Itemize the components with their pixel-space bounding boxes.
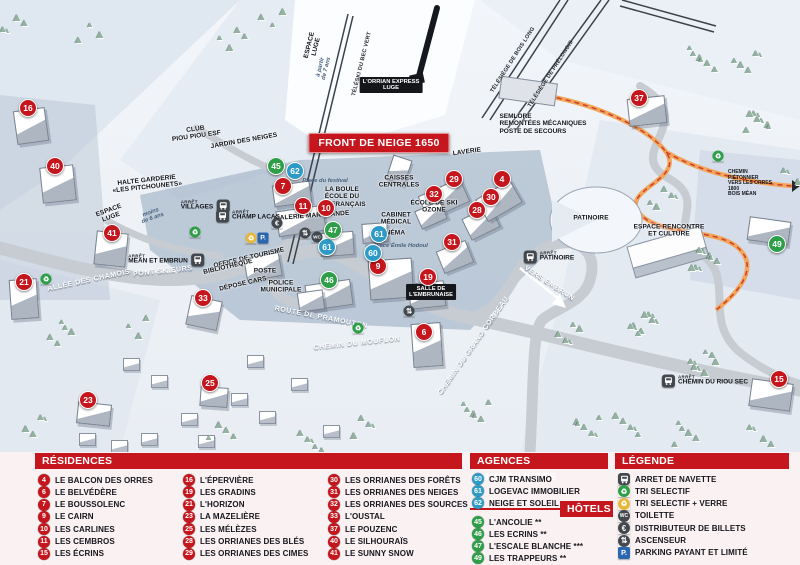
legend-number-badge: 29 xyxy=(183,548,195,560)
tree-icon: ▲ xyxy=(710,355,722,367)
chalet-building xyxy=(151,375,168,388)
tree-icon: ▲ xyxy=(125,322,133,330)
map-marker-28: 28 xyxy=(468,201,486,219)
legend-item-les-carlines: 10LES CARLINES xyxy=(38,523,180,535)
map-marker-62: 62 xyxy=(286,162,304,180)
legend-item-label: LES CEMBROS xyxy=(55,537,115,546)
tree-icon: ▲ xyxy=(484,398,494,408)
poi-recycle-green: ♻ xyxy=(41,274,52,285)
legend-item-label: LES TRAPPEURS ** xyxy=(489,554,566,563)
tree-icon: ▲ xyxy=(216,34,224,42)
legend-item-l-oustal: 33L'OUSTAL xyxy=(328,511,478,523)
legend-item-label: TOILETTE xyxy=(635,511,674,520)
atm-euro-icon: € xyxy=(618,522,630,534)
legend-number-badge: 16 xyxy=(183,474,195,486)
residences-column-3: 30LES ORRIANES DES FORÊTS31LES ORRIANES … xyxy=(328,474,478,560)
recycle-icon: ♻ xyxy=(190,227,201,238)
legend-item-cjm-transimo: 60CJM TRANSIMO xyxy=(472,473,612,485)
chalet-building xyxy=(291,378,308,391)
tree-icon: ▲ xyxy=(646,198,655,207)
tree-icon: ▲ xyxy=(745,423,755,433)
legend-item-label: LES ÉCRINS xyxy=(55,549,104,558)
legend-item-label: PARKING PAYANT ET LIMITÉ xyxy=(635,548,748,557)
legend-item-le-silhoura-s: 40LE SILHOURAÏS xyxy=(328,536,478,548)
legend-item-label: LE CAIRN xyxy=(55,512,94,521)
legend-item-label: LE BOUSSOLENC xyxy=(55,500,125,509)
legend-item-label: LES ORRIANES DES NEIGES xyxy=(345,488,458,497)
map-marker-15: 15 xyxy=(770,370,788,388)
legende-header: LÉGENDE xyxy=(615,453,789,469)
tree-icon: ▲ xyxy=(792,175,800,187)
map-marker-31: 31 xyxy=(443,233,461,251)
resort-map-page: ▲▲▲▲▲▲▲▲▲▲▲▲▲▲▲▲▲▲▲▲▲▲▲▲▲▲▲▲▲▲▲▲▲▲▲▲▲▲▲▲… xyxy=(0,0,800,565)
map-marker-46: 46 xyxy=(320,271,338,289)
map-marker-16: 16 xyxy=(19,99,37,117)
legend-number-badge: 7 xyxy=(38,499,50,511)
legend-item-label: DISTRIBUTEUR DE BILLETS xyxy=(635,524,746,533)
chalet-building xyxy=(247,355,264,368)
tree-icon: ▲ xyxy=(686,261,698,273)
legend-number-badge: 45 xyxy=(472,516,484,528)
map-marker-11: 11 xyxy=(294,197,312,215)
tree-icon: ▲ xyxy=(752,114,763,125)
tree-icon: ▲ xyxy=(741,125,752,136)
legend-number-badge: 15 xyxy=(38,548,50,560)
map-label-semlore: SEMLORE REMONTÉES MÉCANIQUES POSTE DE SE… xyxy=(499,113,586,135)
parking-icon: P. xyxy=(618,547,630,559)
map-label-patinoire: PATINOIRE xyxy=(573,214,608,221)
legend-number-badge: 32 xyxy=(328,499,340,511)
legend-item-les-orrianes-des-cimes: 29LES ORRIANES DES CIMES xyxy=(183,548,325,560)
chalet-building xyxy=(123,358,140,371)
residences-column-2: 16L'ÉPERVIÈRE19LES GRADINS21L'HORIZON23L… xyxy=(183,474,325,560)
residences-header: RÉSIDENCES xyxy=(35,453,462,469)
map-label-l-orrian-express: L'ORRIAN EXPRESS LUGE xyxy=(360,77,423,93)
legend-number-badge: 46 xyxy=(472,528,484,540)
bus-stop-chemin-du-riou-sec: ARRÊTCHEMIN DU RIOU SEC xyxy=(662,375,748,388)
map-marker-10: 10 xyxy=(317,199,335,217)
legend-item-la-mazeli-re: 23LA MAZELIÈRE xyxy=(183,511,325,523)
legend-number-badge: 23 xyxy=(183,511,195,523)
bus-icon xyxy=(662,375,675,388)
tree-icon: ▲ xyxy=(61,323,70,332)
tree-icon: ▲ xyxy=(569,320,578,329)
bus-icon xyxy=(618,473,630,485)
legend-item-label: LES ORRIANES DES SOURCES xyxy=(345,500,468,509)
legend-item-label: ASCENSEUR xyxy=(635,536,686,545)
bus-stop-patinoire: ARRÊTPATINOIRE xyxy=(524,251,574,264)
tree-icon: ▲ xyxy=(765,123,773,131)
agences-column: 60CJM TRANSIMO61LOGEVAC IMMOBILIER62NEIG… xyxy=(472,473,612,506)
legend-item-tri-selectif: ♻TRI SELECTIF xyxy=(618,485,793,497)
legend-item-label: TRI SELECTIF + VERRE xyxy=(635,499,727,508)
map-marker-40: 40 xyxy=(46,157,64,175)
legend-item-label: LES MÉLÈZES xyxy=(200,525,257,534)
poi-recycle-green: ♻ xyxy=(190,227,201,238)
map-marker-33: 33 xyxy=(194,289,212,307)
legend-item-l-horizon: 21L'HORIZON xyxy=(183,499,325,511)
recycle-glass-icon: ♻ xyxy=(618,498,630,510)
map-label-place-mile-hodoul: Place Émile Hodoul xyxy=(374,243,428,249)
legend-item-les-orrianes-des-bl-s: 28LES ORRIANES DES BLÉS xyxy=(183,536,325,548)
map-marker-29: 29 xyxy=(445,170,463,188)
tree-icon: ▲ xyxy=(53,339,63,349)
legend-item-label: LES GRADINS xyxy=(200,488,256,497)
recycle-icon: ♻ xyxy=(353,323,364,334)
legend-item-ascenseur: ⇅ASCENSEUR xyxy=(618,535,793,547)
village-map: ▲▲▲▲▲▲▲▲▲▲▲▲▲▲▲▲▲▲▲▲▲▲▲▲▲▲▲▲▲▲▲▲▲▲▲▲▲▲▲▲… xyxy=(0,0,800,452)
legend-number-badge: 19 xyxy=(183,486,195,498)
tree-icon: ▲ xyxy=(205,434,213,442)
tree-icon: ▲ xyxy=(277,5,289,17)
elevator-icon: ⇅ xyxy=(300,228,311,239)
poi-elevator: ⇅ xyxy=(404,306,415,317)
legend-item-l-pervi-re: 16L'ÉPERVIÈRE xyxy=(183,474,325,486)
recycle-icon: ♻ xyxy=(41,274,52,285)
map-label-poste: POSTE xyxy=(254,267,277,274)
tree-icon: ▲ xyxy=(141,313,152,324)
toilet-icon: WC xyxy=(618,510,630,522)
legend-item-les-orrianes-des-neiges: 31LES ORRIANES DES NEIGES xyxy=(328,486,478,498)
legend-item-label: LES CARLINES xyxy=(55,525,115,534)
tree-icon: ▲ xyxy=(73,35,84,46)
bus-stop-champ-lacas: ARRÊTCHAMP LACAS xyxy=(216,210,280,223)
recycle-glass-icon: ♻ xyxy=(618,498,630,510)
chalet-building xyxy=(259,411,276,424)
parking-icon: P. xyxy=(258,233,269,244)
tree-icon: ▲ xyxy=(634,430,643,439)
map-marker-30: 30 xyxy=(482,188,500,206)
chalet-building xyxy=(323,425,340,438)
tree-icon: ▲ xyxy=(697,56,705,64)
legende-column: ARRET DE NAVETTE♻TRI SELECTIF♻TRI SELECT… xyxy=(618,473,793,559)
legend-item-le-sunny-snow: 41LE SUNNY SNOW xyxy=(328,548,478,560)
legend-item-le-balcon-des-orres: 4LE BALCON DES ORRES xyxy=(38,474,180,486)
chalet-building xyxy=(141,433,158,446)
hotels-column: 45L'ANCOLIE **46LES ECRINS **47L'ESCALE … xyxy=(472,516,612,561)
bus-icon xyxy=(524,251,537,264)
tree-icon: ▲ xyxy=(702,348,710,356)
chalet-building xyxy=(181,413,198,426)
legend-number-badge: 40 xyxy=(328,536,340,548)
legend-number-badge: 47 xyxy=(472,540,484,552)
tree-icon: ▲ xyxy=(471,412,479,420)
legend-item-label: LE SILHOURAÏS xyxy=(345,537,408,546)
legend-number-badge: 9 xyxy=(38,511,50,523)
legend-item-arret-de-navette: ARRET DE NAVETTE xyxy=(618,473,793,485)
elevator-icon: ⇅ xyxy=(618,535,630,547)
bus-stop-m-an-et-embrun: ARRÊTMÉAN ET EMBRUN xyxy=(128,254,204,267)
map-marker-4: 4 xyxy=(493,170,511,188)
bus-icon xyxy=(191,254,204,267)
legend-number-badge: 33 xyxy=(328,511,340,523)
bus-stop-label: ARRÊTMÉAN ET EMBRUN xyxy=(128,254,188,266)
legend-number-badge: 62 xyxy=(472,497,484,509)
legend-item-neige-et-soleil: 62NEIGE ET SOLEIL xyxy=(472,497,612,509)
legend-item-les-trappeurs-: 49LES TRAPPEURS ** xyxy=(472,552,612,564)
legend-item-logevac-immobilier: 61LOGEVAC IMMOBILIER xyxy=(472,485,612,497)
parking-icon: P. xyxy=(618,547,630,559)
tree-icon: ▲ xyxy=(311,442,320,451)
tree-icon: ▲ xyxy=(766,439,777,450)
legend-item-les-gradins: 19LES GRADINS xyxy=(183,486,325,498)
poi-recycle-yellow: ♻ xyxy=(246,233,257,244)
map-marker-19: 19 xyxy=(419,268,437,286)
tree-icon: ▲ xyxy=(587,429,597,439)
legend-item-le-pouzenc: 37LE POUZENC xyxy=(328,523,478,535)
tree-icon: ▲ xyxy=(94,28,106,40)
legend-item-label: LOGEVAC IMMOBILIER xyxy=(489,487,580,496)
map-marker-41: 41 xyxy=(103,224,121,242)
tree-icon: ▲ xyxy=(224,41,236,53)
legend-item-label: LA MAZELIÈRE xyxy=(200,512,260,521)
tree-icon: ▲ xyxy=(36,413,46,423)
tree-icon: ▲ xyxy=(647,315,658,326)
atm-euro-icon: € xyxy=(618,522,630,534)
legend-item-label: NEIGE ET SOLEIL xyxy=(489,499,559,508)
legend-item-label: LE SUNNY SNOW xyxy=(345,549,414,558)
poi-recycle-green: ♻ xyxy=(713,151,724,162)
map-marker-61: 61 xyxy=(370,225,388,243)
tree-icon: ▲ xyxy=(240,32,250,42)
map-marker-37: 37 xyxy=(630,89,648,107)
map-label-salle-de: SALLE DE L'EMBRUNAISE xyxy=(406,284,456,300)
legend-item-label: LES ORRIANES DES CIMES xyxy=(200,549,308,558)
map-marker-60: 60 xyxy=(364,244,382,262)
legend-panel: RÉSIDENCES AGENCES IMMOBILIÈRES LÉGENDE … xyxy=(0,452,800,565)
tree-icon: ▲ xyxy=(751,49,761,59)
tree-icon: ▲ xyxy=(689,362,700,373)
elevator-icon: ⇅ xyxy=(404,306,415,317)
tree-icon: ▲ xyxy=(694,245,705,256)
tree-icon: ▲ xyxy=(364,420,374,430)
map-marker-7: 7 xyxy=(274,177,292,195)
tree-icon: ▲ xyxy=(561,336,571,346)
legend-item-les-cembros: 11LES CEMBROS xyxy=(38,536,180,548)
legend-item-label: L'ÉPERVIÈRE xyxy=(200,476,254,485)
map-marker-25: 25 xyxy=(201,374,219,392)
poi-parking: P. xyxy=(258,233,269,244)
tree-icon: ▲ xyxy=(670,440,680,450)
map-marker-32: 32 xyxy=(425,185,443,203)
map-marker-23: 23 xyxy=(79,391,97,409)
legend-item-label: LES ECRINS ** xyxy=(489,530,547,539)
legend-number-badge: 30 xyxy=(328,474,340,486)
tree-icon: ▲ xyxy=(707,254,715,262)
map-label-espace-rencontre: ESPACE RENCONTRE ET CULTURE xyxy=(634,224,705,239)
tree-icon: ▲ xyxy=(779,166,789,176)
residences-column-1: 4LE BALCON DES ORRES6LE BELVÉDÈRE7LE BOU… xyxy=(38,474,180,560)
elevator-icon: ⇅ xyxy=(618,535,630,547)
legend-item-l-ancolie-: 45L'ANCOLIE ** xyxy=(472,516,612,528)
legend-item-distributeur-de-billets: €DISTRIBUTEUR DE BILLETS xyxy=(618,522,793,534)
legend-number-badge: 49 xyxy=(472,552,484,564)
tree-icon: ▲ xyxy=(667,191,677,201)
tree-icon: ▲ xyxy=(678,424,687,433)
legend-item-label: LES ORRIANES DES FORÊTS xyxy=(345,476,461,485)
legend-item-toilette: WCTOILETTE xyxy=(618,510,793,522)
tree-icon: ▲ xyxy=(19,18,30,29)
tree-icon: ▲ xyxy=(743,65,754,76)
legend-number-badge: 6 xyxy=(38,486,50,498)
legend-number-badge: 25 xyxy=(183,523,195,535)
legend-item-label: L'ANCOLIE ** xyxy=(489,518,541,527)
tree-icon: ▲ xyxy=(691,433,702,444)
legend-number-badge: 61 xyxy=(472,485,484,497)
legend-item-label: LE BELVÉDÈRE xyxy=(55,488,117,497)
tree-icon: ▲ xyxy=(634,329,643,338)
map-label-cabinet: CABINET MÉDICAL xyxy=(381,212,411,227)
bus-icon xyxy=(618,473,630,485)
legend-item-le-belv-d-re: 6LE BELVÉDÈRE xyxy=(38,486,180,498)
legend-item-parking-payant-et-limit-: P.PARKING PAYANT ET LIMITÉ xyxy=(618,547,793,559)
legend-item-tri-selectif-verre: ♻TRI SELECTIF + VERRE xyxy=(618,498,793,510)
bus-stop-label: ARRÊTCHEMIN DU RIOU SEC xyxy=(678,375,748,387)
legend-item-label: TRI SELECTIF xyxy=(635,487,690,496)
tree-icon: ▲ xyxy=(269,21,277,29)
legend-number-badge: 10 xyxy=(38,523,50,535)
legend-number-badge: 60 xyxy=(472,473,484,485)
poi-recycle-green: ♻ xyxy=(353,323,364,334)
legend-item-les-ecrins-: 46LES ECRINS ** xyxy=(472,528,612,540)
tree-icon: ▲ xyxy=(256,12,267,23)
legend-number-badge: 21 xyxy=(183,499,195,511)
legend-item-label: LE POUZENC xyxy=(345,525,398,534)
legend-number-badge: 41 xyxy=(328,548,340,560)
legend-item-label: ARRET DE NAVETTE xyxy=(635,475,716,484)
tree-icon: ▲ xyxy=(86,21,94,29)
tree-icon: ▲ xyxy=(730,56,739,65)
tree-icon: ▲ xyxy=(595,413,604,422)
map-label-police: POLICE MUNICIPALE xyxy=(261,280,302,295)
map-marker-21: 21 xyxy=(15,273,33,291)
bus-icon xyxy=(216,210,229,223)
legend-item-le-boussolenc: 7LE BOUSSOLENC xyxy=(38,499,180,511)
legend-number-badge: 28 xyxy=(183,536,195,548)
legend-number-badge: 31 xyxy=(328,486,340,498)
legend-number-badge: 11 xyxy=(38,536,50,548)
recycle-icon: ♻ xyxy=(713,151,724,162)
legend-item-les-m-l-zes: 25LES MÉLÈZES xyxy=(183,523,325,535)
recycle-icon: ♻ xyxy=(618,485,630,497)
tree-icon: ▲ xyxy=(574,420,582,428)
legend-number-badge: 37 xyxy=(328,523,340,535)
legend-item-le-cairn: 9LE CAIRN xyxy=(38,511,180,523)
chalet-building xyxy=(79,433,96,446)
legend-item-les-orrianes-des-for-ts: 30LES ORRIANES DES FORÊTS xyxy=(328,474,478,486)
poi-elevator: ⇅ xyxy=(300,228,311,239)
tree-icon: ▲ xyxy=(133,329,145,341)
map-label-chemin-pi-tonnier: CHEMIN PIÉTONNIER VERS LES ORRES 1800 BO… xyxy=(728,170,776,198)
legend-number-badge: 4 xyxy=(38,474,50,486)
map-marker-49: 49 xyxy=(768,235,786,253)
recycle-glass-icon: ♻ xyxy=(246,233,257,244)
map-label-place-du-festival: Place du festival xyxy=(302,178,347,184)
legend-item-label: L'HORIZON xyxy=(200,500,245,509)
map-marker-45: 45 xyxy=(267,157,285,175)
map-marker-61: 61 xyxy=(318,238,336,256)
toilet-icon: WC xyxy=(618,510,630,522)
bus-stop-label: ARRÊTPATINOIRE xyxy=(540,251,574,263)
chalet-building xyxy=(231,393,248,406)
tree-icon: ▲ xyxy=(229,432,239,442)
bus-stop-label: ARRÊTVILLAGES xyxy=(181,200,214,212)
map-label-caisses: CAISSES CENTRALES xyxy=(379,175,420,190)
legend-item-label: CJM TRANSIMO xyxy=(489,475,552,484)
front-de-neige-banner: FRONT DE NEIGE 1650 xyxy=(308,133,449,153)
bus-stop-label: ARRÊTCHAMP LACAS xyxy=(232,210,280,222)
legend-item-label: LES ORRIANES DES BLÉS xyxy=(200,537,304,546)
legend-item-label: L'ESCALE BLANCHE *** xyxy=(489,542,583,551)
legend-item-les-orrianes-des-sources: 32LES ORRIANES DES SOURCES xyxy=(328,499,478,511)
agences-header: AGENCES IMMOBILIÈRES xyxy=(470,453,608,469)
legend-item-les-crins: 15LES ÉCRINS xyxy=(38,548,180,560)
legend-item-label: LE BALCON DES ORRES xyxy=(55,476,153,485)
tree-icon: ▲ xyxy=(348,429,360,441)
legend-item-l-escale-blanche-: 47L'ESCALE BLANCHE *** xyxy=(472,540,612,552)
map-marker-6: 6 xyxy=(415,323,433,341)
tree-icon: ▲ xyxy=(710,65,720,75)
tree-icon: ▲ xyxy=(0,25,8,35)
map-marker-47: 47 xyxy=(324,221,342,239)
recycle-icon: ♻ xyxy=(618,485,630,497)
tree-icon: ▲ xyxy=(28,429,39,440)
legend-item-label: L'OUSTAL xyxy=(345,512,385,521)
